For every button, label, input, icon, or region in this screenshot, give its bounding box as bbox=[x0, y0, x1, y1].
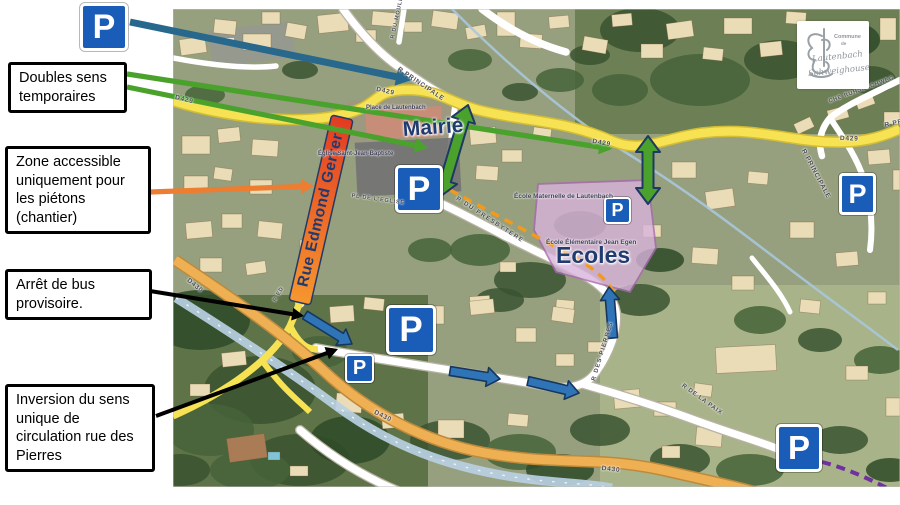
logo-text-de: de bbox=[841, 41, 846, 46]
traffic-plan-canvas: Doubles sens temporaires Zone accessible… bbox=[0, 0, 900, 505]
parking-p-glyph: P bbox=[93, 8, 116, 47]
parking-p-glyph: P bbox=[788, 429, 810, 467]
poi-label-eglise: Église Saint-Jean-Baptiste bbox=[318, 151, 393, 157]
poi-label-place-lautenbach: Place de Lautenbach bbox=[366, 105, 426, 111]
parking-sign-center-small: P bbox=[345, 354, 374, 383]
mairie-label: Mairie bbox=[402, 114, 464, 142]
parking-sign-right: P bbox=[839, 173, 876, 215]
ecoles-label: Ecoles bbox=[556, 242, 630, 269]
parking-sign-center-large: P bbox=[386, 305, 436, 355]
callout-zone-accessible: Zone accessible uniquement pour les piét… bbox=[5, 146, 151, 234]
callout-arret-bus: Arrêt de bus provisoire. bbox=[5, 269, 152, 320]
parking-p-glyph: P bbox=[611, 200, 623, 221]
parking-sign-bottom-right: P bbox=[776, 424, 822, 472]
callout-doubles-sens-text: Doubles sens temporaires bbox=[19, 70, 107, 105]
parking-p-glyph: P bbox=[408, 170, 431, 209]
callout-arret-bus-text: Arrêt de bus provisoire. bbox=[16, 277, 95, 312]
callout-zone-accessible-text: Zone accessible uniquement pour les piét… bbox=[16, 154, 125, 226]
logo-text-commune: Commune bbox=[834, 34, 861, 40]
poi-label-ecole-elementaire: École Élémentaire Jean Egen bbox=[546, 239, 636, 246]
parking-p-glyph: P bbox=[399, 310, 422, 350]
commune-logo: Commune de Lautenbach Schweighouse bbox=[797, 21, 869, 89]
callout-inversion-sens-text: Inversion du sens unique de circulation … bbox=[16, 392, 134, 464]
road-label-d429-4: D429 bbox=[840, 135, 859, 143]
parking-sign-top-left: P bbox=[80, 3, 128, 51]
parking-sign-maternelle: P bbox=[604, 197, 631, 224]
parking-p-glyph: P bbox=[353, 357, 366, 380]
callout-inversion-sens: Inversion du sens unique de circulation … bbox=[5, 384, 155, 472]
parking-p-glyph: P bbox=[848, 179, 866, 210]
callout-doubles-sens: Doubles sens temporaires bbox=[8, 62, 127, 113]
poi-label-ecole-maternelle: École Maternelle de Lautenbach bbox=[514, 193, 613, 200]
